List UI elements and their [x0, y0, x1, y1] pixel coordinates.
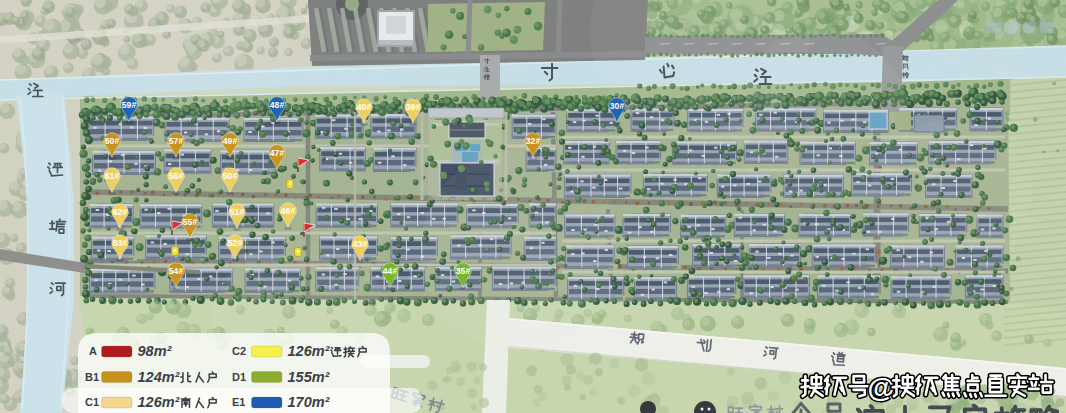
svg-text:98m²: 98m² — [138, 343, 173, 359]
svg-text:35#: 35# — [456, 266, 471, 276]
svg-text:40#: 40# — [357, 102, 372, 112]
svg-text:60#: 60# — [105, 136, 120, 146]
svg-text:B1: B1 — [85, 371, 99, 383]
svg-text:C2: C2 — [232, 345, 246, 357]
svg-text:62#: 62# — [113, 207, 128, 217]
svg-text:59#: 59# — [122, 100, 137, 110]
svg-text:55#: 55# — [183, 217, 198, 227]
svg-text:A: A — [89, 345, 97, 357]
svg-text:170m²: 170m² — [288, 394, 331, 410]
svg-text:155m²: 155m² — [288, 369, 331, 385]
svg-text:61#: 61# — [105, 171, 120, 181]
svg-text:E1: E1 — [232, 396, 245, 408]
svg-text:46#: 46# — [281, 206, 296, 216]
svg-text:52#: 52# — [228, 238, 243, 248]
svg-text:44#: 44# — [383, 266, 398, 276]
svg-text:54#: 54# — [169, 266, 184, 276]
svg-text:51#: 51# — [230, 207, 245, 217]
svg-text:43#: 43# — [353, 239, 368, 249]
svg-text:32#: 32# — [526, 136, 541, 146]
svg-text:47#: 47# — [270, 148, 285, 158]
svg-text:30#: 30# — [610, 101, 625, 111]
svg-text:49#: 49# — [223, 136, 238, 146]
svg-text:126m²: 126m² — [138, 394, 181, 410]
svg-text:124m²: 124m² — [138, 369, 181, 385]
svg-text:48#: 48# — [270, 100, 285, 110]
svg-text:50#: 50# — [223, 171, 238, 181]
svg-text:39#: 39# — [406, 102, 421, 112]
svg-text:56#: 56# — [169, 171, 184, 181]
svg-text:57#: 57# — [169, 136, 184, 146]
svg-text:C1: C1 — [85, 396, 99, 408]
svg-text:126m²: 126m² — [288, 343, 331, 359]
svg-text:63#: 63# — [113, 238, 128, 248]
svg-text:D1: D1 — [232, 371, 246, 383]
